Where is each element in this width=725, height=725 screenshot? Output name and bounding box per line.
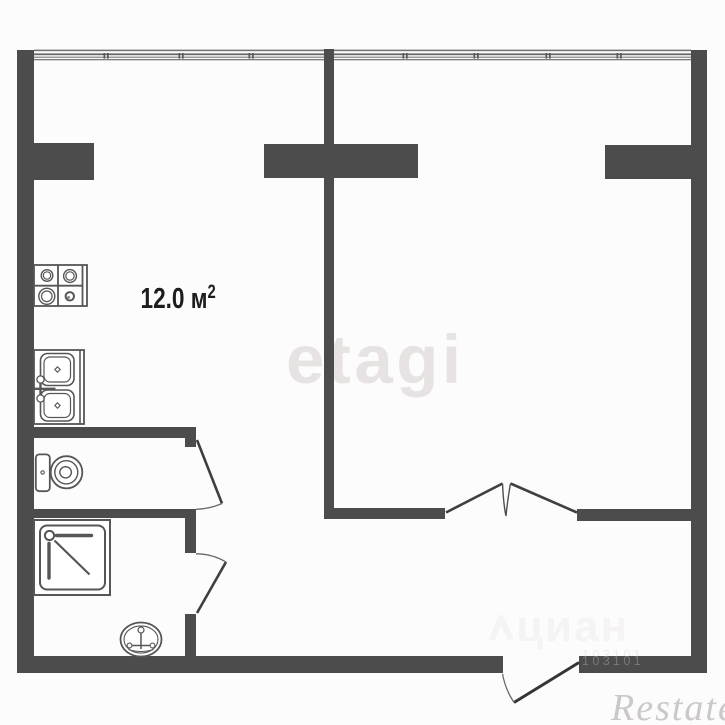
svg-text:циан: циан: [516, 602, 629, 651]
svg-text:12.0 м2: 12.0 м2: [141, 281, 216, 314]
svg-text:Restate: Restate: [610, 687, 725, 725]
svg-text:103101: 103101: [582, 654, 644, 668]
svg-text:etagi: etagi: [286, 321, 465, 398]
